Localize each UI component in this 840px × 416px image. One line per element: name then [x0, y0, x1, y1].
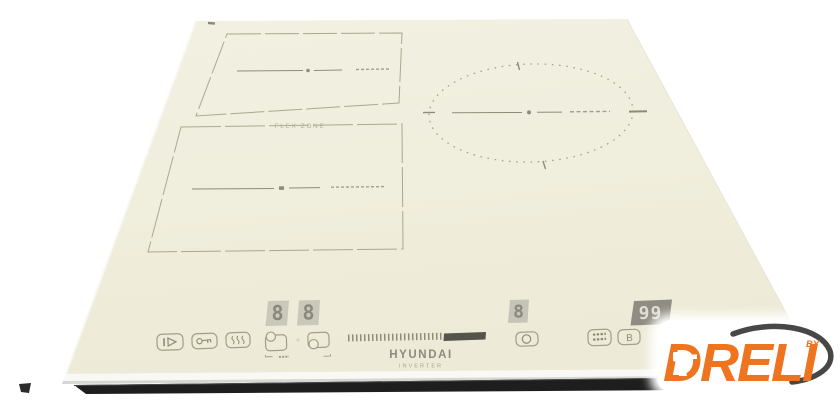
trim-left-tip: [19, 383, 31, 393]
boost-label: B: [626, 333, 633, 344]
power-slider-bar: [444, 332, 487, 341]
flex-zone-label: FLEX ZONE: [275, 123, 326, 130]
brand-tagline: INVERTER: [399, 364, 443, 370]
brand-name: HYUNDAI: [389, 349, 453, 361]
display-flex-back-value: 8: [271, 301, 283, 325]
watermark-name: DRELI: [663, 333, 818, 393]
display-right-zone-value: 8: [513, 302, 524, 323]
watermark-by-label: BY: [806, 339, 821, 350]
panel-dot: [296, 338, 299, 341]
product-photo: FLEX ZONE 8 8 8 99: [0, 0, 840, 416]
watermark-logo: DRELI BY: [650, 314, 840, 398]
cooktop-photo-svg: FLEX ZONE 8 8 8 99: [0, 0, 840, 416]
display-flex-front-value: 8: [302, 301, 314, 325]
